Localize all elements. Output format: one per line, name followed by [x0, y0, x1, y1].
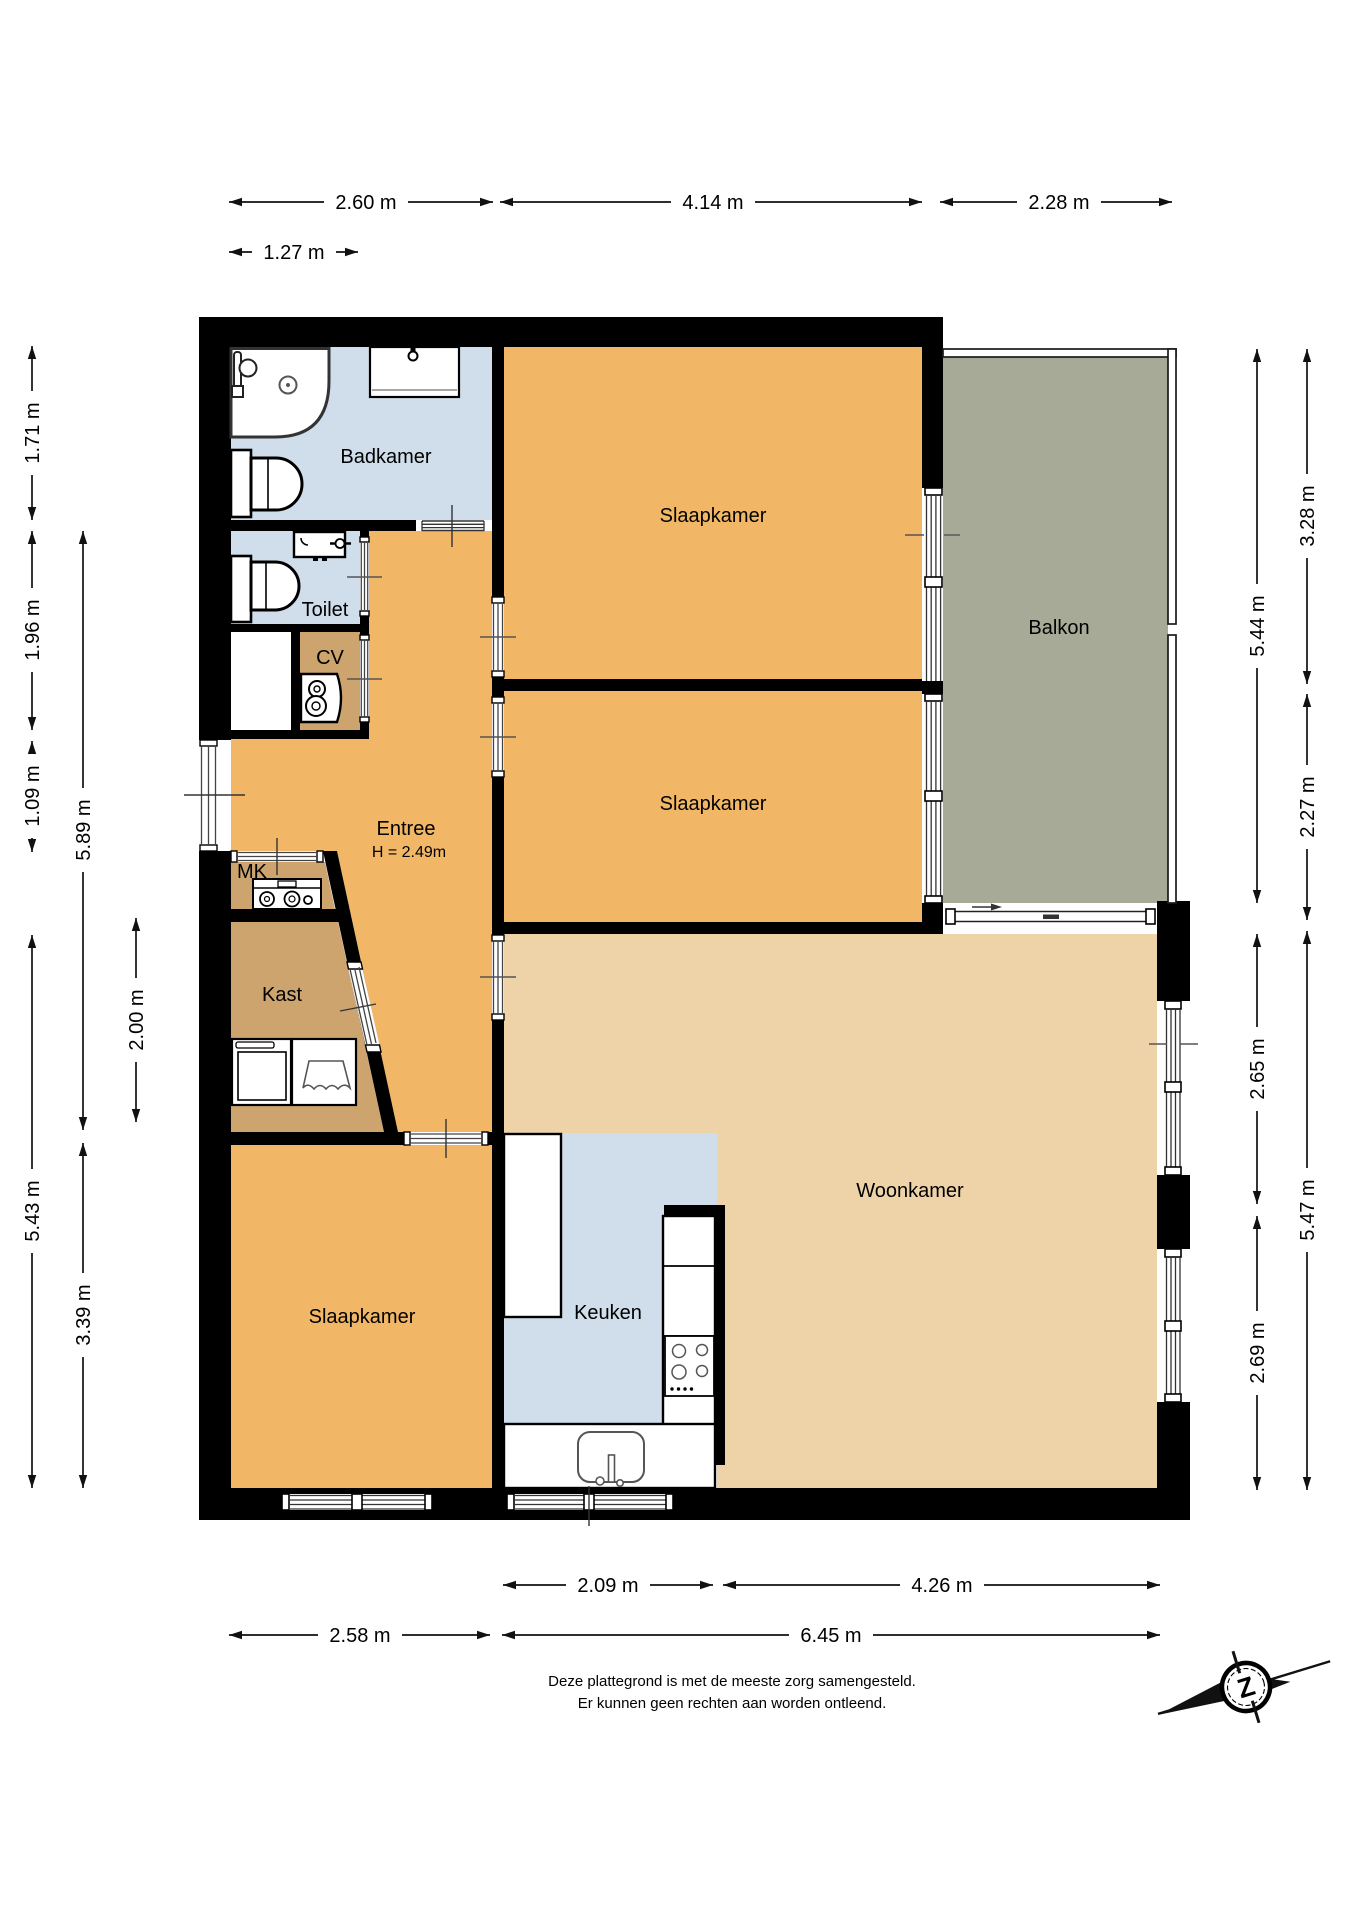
svg-text:2.28 m: 2.28 m [1028, 192, 1089, 214]
svg-text:5.44 m: 5.44 m [1247, 595, 1269, 656]
svg-text:5.89 m: 5.89 m [73, 799, 95, 860]
svg-text:Woonkamer: Woonkamer [856, 1180, 964, 1202]
svg-text:1.27 m: 1.27 m [263, 242, 324, 264]
svg-text:2.58 m: 2.58 m [329, 1625, 390, 1647]
svg-text:1.96 m: 1.96 m [22, 599, 44, 660]
svg-text:2.27 m: 2.27 m [1297, 776, 1319, 837]
svg-text:Keuken: Keuken [574, 1302, 642, 1324]
svg-text:Er kunnen geen rechten aan wor: Er kunnen geen rechten aan worden ontlee… [578, 1695, 887, 1712]
svg-text:2.69 m: 2.69 m [1247, 1322, 1269, 1383]
svg-text:Entree: Entree [377, 818, 436, 840]
svg-text:1.71 m: 1.71 m [22, 402, 44, 463]
svg-text:2.60 m: 2.60 m [335, 192, 396, 214]
svg-text:5.47 m: 5.47 m [1297, 1179, 1319, 1240]
svg-text:Slaapkamer: Slaapkamer [309, 1306, 416, 1328]
svg-text:H = 2.49m: H = 2.49m [372, 844, 446, 861]
svg-text:2.65 m: 2.65 m [1247, 1038, 1269, 1099]
svg-text:Slaapkamer: Slaapkamer [660, 793, 767, 815]
svg-text:Slaapkamer: Slaapkamer [660, 505, 767, 527]
svg-text:1.09 m: 1.09 m [22, 765, 44, 826]
svg-text:Toilet: Toilet [302, 599, 349, 621]
svg-text:2.09 m: 2.09 m [577, 1575, 638, 1597]
svg-text:Deze plattegrond is met de mee: Deze plattegrond is met de meeste zorg s… [548, 1673, 916, 1690]
svg-text:Balkon: Balkon [1028, 617, 1089, 639]
svg-text:Badkamer: Badkamer [340, 446, 431, 468]
svg-text:3.28 m: 3.28 m [1297, 485, 1319, 546]
svg-text:6.45 m: 6.45 m [800, 1625, 861, 1647]
svg-text:2.00 m: 2.00 m [126, 989, 148, 1050]
svg-text:CV: CV [316, 647, 344, 669]
svg-text:5.43 m: 5.43 m [22, 1180, 44, 1241]
svg-text:3.39 m: 3.39 m [73, 1284, 95, 1345]
svg-text:MK: MK [237, 861, 268, 883]
svg-text:Kast: Kast [262, 984, 302, 1006]
svg-text:4.26 m: 4.26 m [911, 1575, 972, 1597]
svg-text:4.14 m: 4.14 m [682, 192, 743, 214]
